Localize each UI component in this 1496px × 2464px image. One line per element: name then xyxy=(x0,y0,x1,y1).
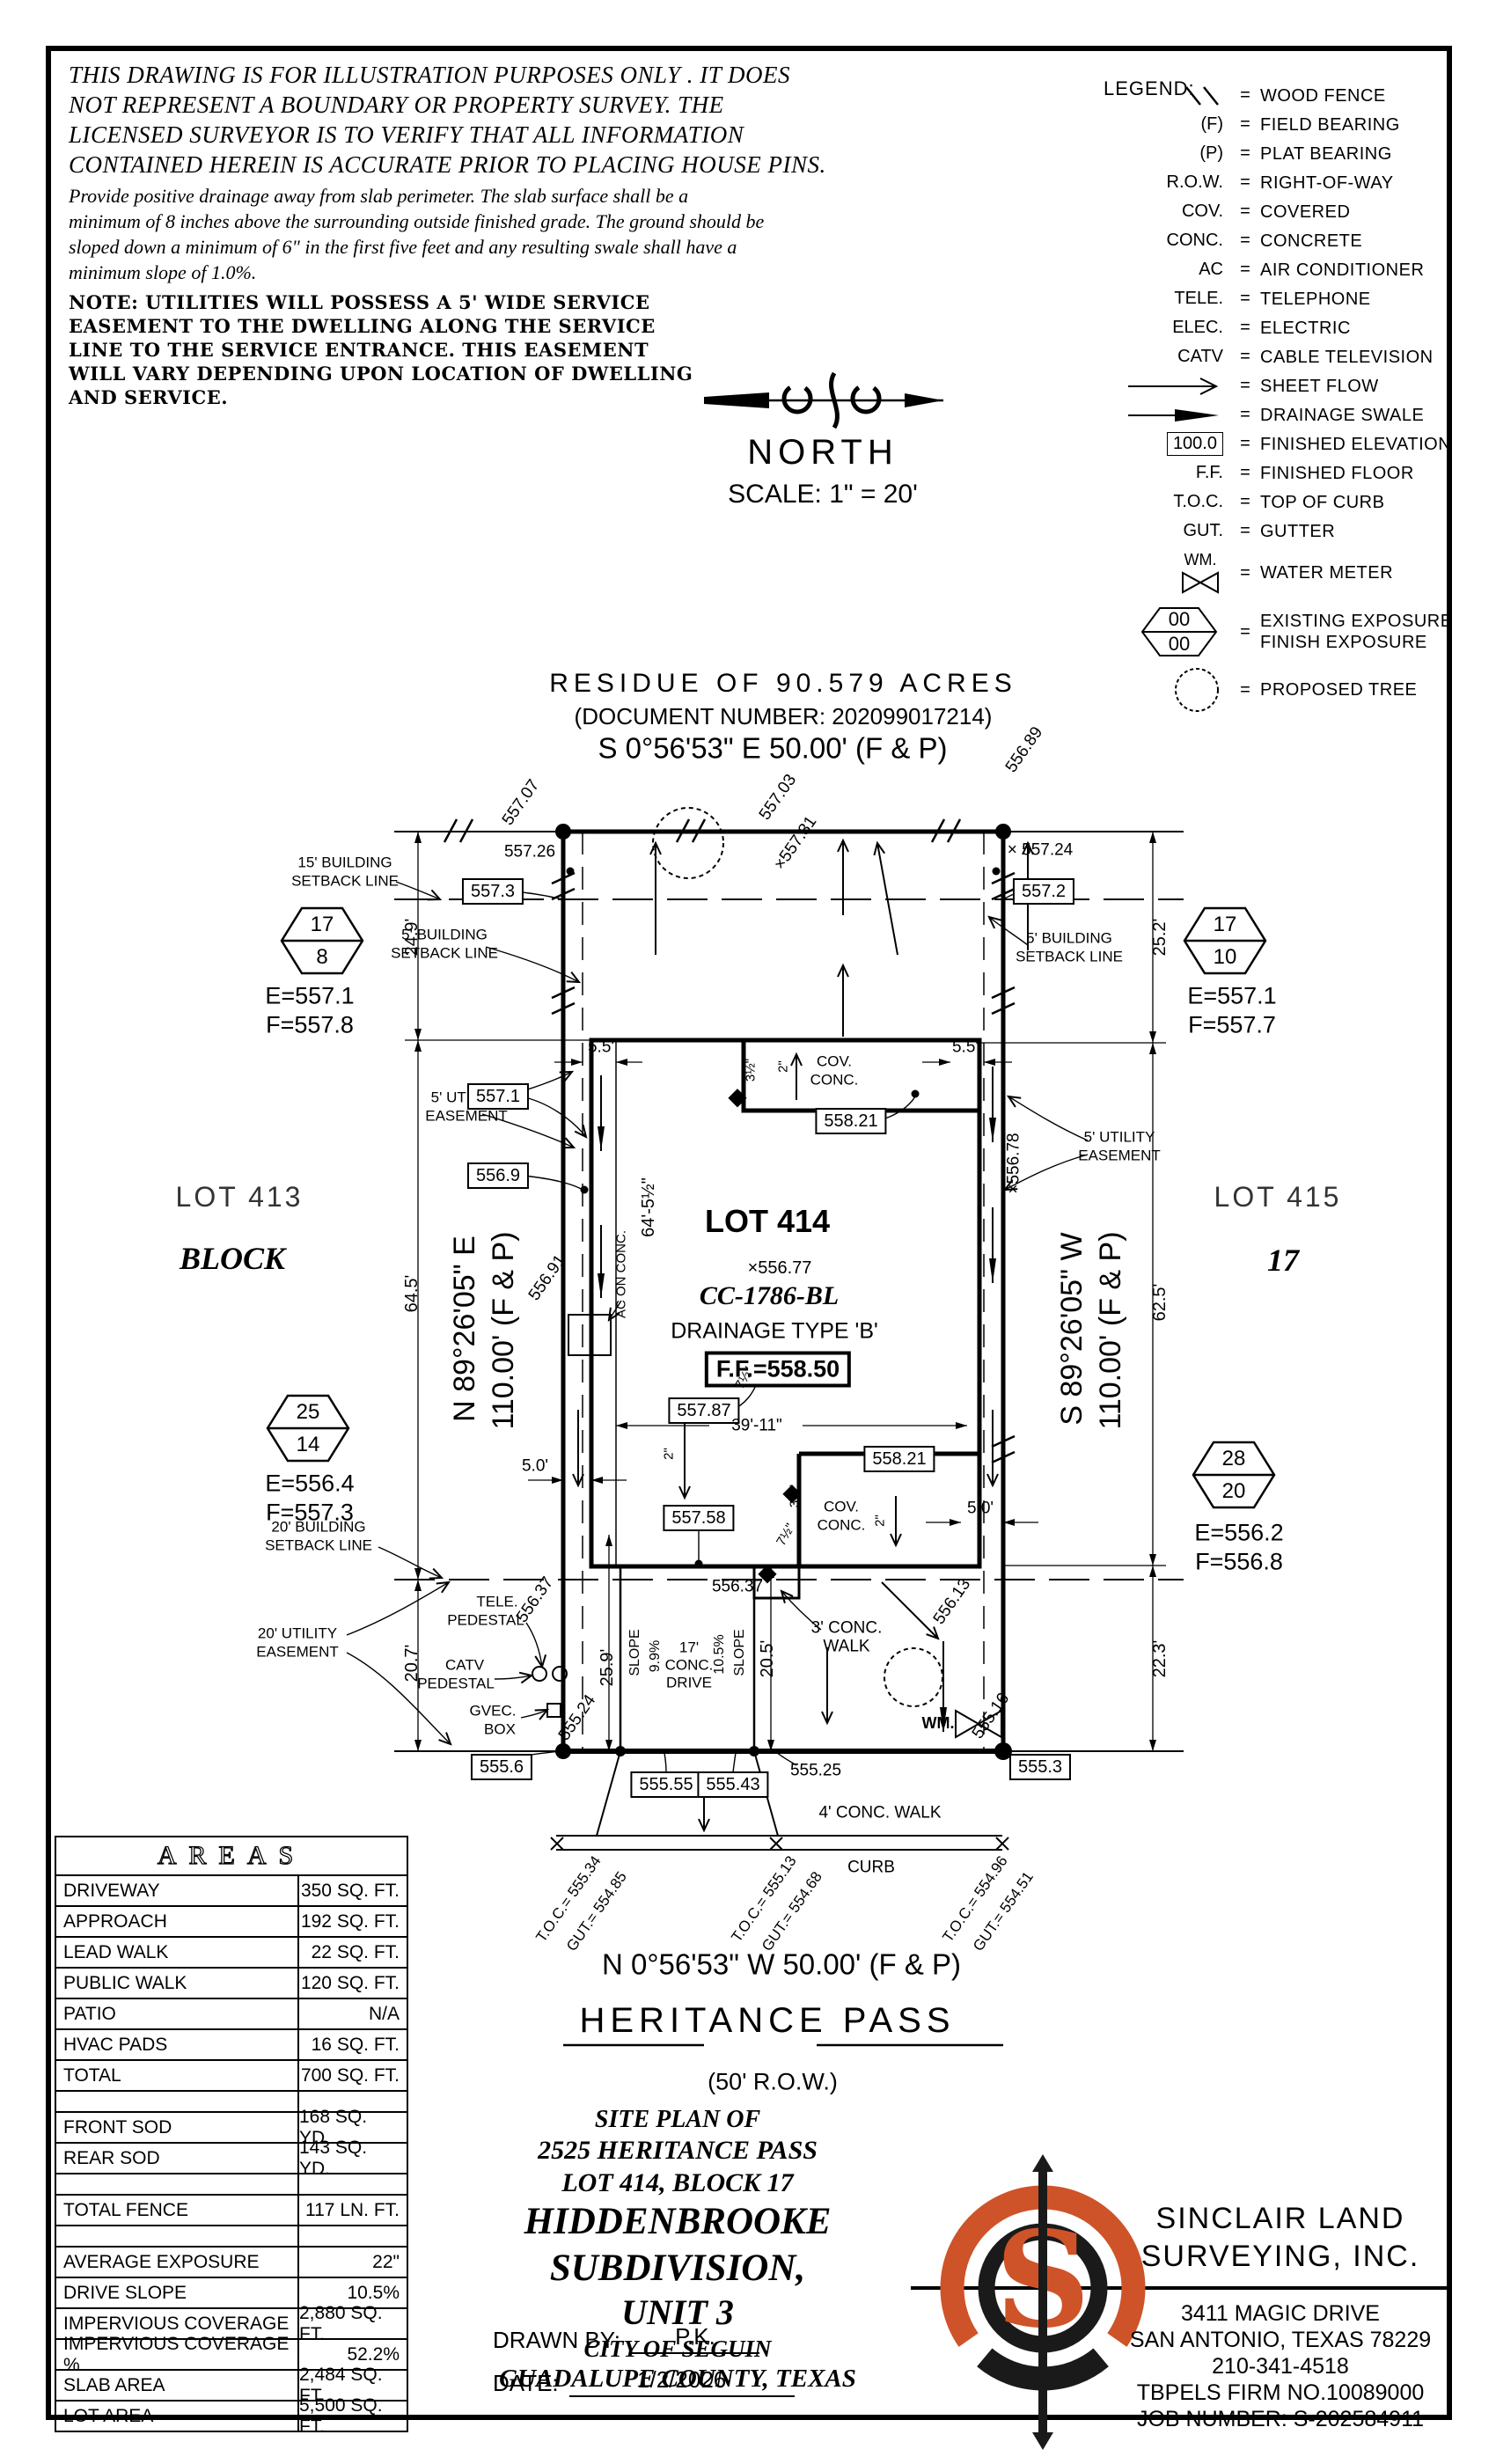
areas-table-row: TOTAL FENCE 117 LN. FT. xyxy=(55,2196,408,2226)
area-value: 700 SQ. FT. xyxy=(299,2061,407,2090)
plot-annotation: 25.9' xyxy=(598,1649,616,1687)
plot-annotation: 110.00' (F & P) xyxy=(488,1231,518,1429)
area-label: PATIO xyxy=(56,1999,299,2028)
area-label: APPROACH xyxy=(56,1907,299,1936)
legend: LEGEND: =WOOD FENCE (F)=FIELD BEARING (P… xyxy=(1091,69,1478,716)
legend-row: 100.0=FINISHED ELEVATION xyxy=(1091,429,1478,458)
note-line: minimum of 8 inches above the surroundin… xyxy=(69,209,949,234)
drainage-note: Provide positive drainage away from slab… xyxy=(69,183,949,285)
legend-row: WM. =WATER METER xyxy=(1091,546,1478,600)
plot-annotation: PEDESTAL xyxy=(447,1613,524,1628)
plot-annotation: EASEMENT xyxy=(1078,1148,1161,1163)
plot-annotation: 2" xyxy=(874,1514,887,1527)
plot-annotation: 20' BUILDING xyxy=(271,1520,365,1535)
legend-row: (F)=FIELD BEARING xyxy=(1091,110,1478,139)
areas-table-row xyxy=(55,2174,408,2196)
area-value xyxy=(299,2174,407,2194)
area-value: 5,500 SQ. FT. xyxy=(299,2402,407,2431)
proposed-tree-icon xyxy=(653,808,723,878)
areas-table: AREAS DRIVEWAY 350 SQ. FT. APPROACH 192 … xyxy=(55,1836,408,2432)
date-value: 1/2/2026 xyxy=(569,2366,795,2397)
area-label: AVERAGE EXPOSURE xyxy=(56,2248,299,2277)
title-line: HIDDENBROOKE SUBDIVISION, xyxy=(414,2199,942,2292)
plot-annotation: 64'-5½" xyxy=(640,1177,657,1237)
area-label: DRIVE SLOPE xyxy=(56,2278,299,2307)
plot-annotation: ×556.78 xyxy=(1006,1133,1023,1193)
note-line: LINE TO THE SERVICE ENTRANCE. THIS EASEM… xyxy=(69,338,949,362)
plot-annotation: 17 xyxy=(1267,1244,1299,1276)
note-line: Provide positive drainage away from slab… xyxy=(69,183,949,209)
plot-annotation: F=557.8 xyxy=(266,1014,354,1038)
plot-annotation: CURB xyxy=(847,1859,895,1876)
plot-annotation: BLOCK xyxy=(180,1243,285,1274)
plot-annotation: 64.5' xyxy=(403,1275,421,1313)
proposed-tree-icon xyxy=(1170,665,1223,715)
legend-row: F.F.=FINISHED FLOOR xyxy=(1091,458,1478,488)
plot-annotation: 557.26 xyxy=(504,844,555,861)
legend-row: =DRAINAGE SWALE xyxy=(1091,400,1478,429)
areas-table-row: LOT AREA 5,500 SQ. FT. xyxy=(55,2402,408,2432)
area-value: 117 LN. FT. xyxy=(299,2196,407,2225)
areas-table-row: PUBLIC WALK 120 SQ. FT. xyxy=(55,1969,408,1999)
area-value: 2,880 SQ. FT. xyxy=(299,2309,407,2338)
plot-annotation: 555.3 xyxy=(1009,1754,1071,1780)
surveyor-address-line: TBPELS FIRM NO.10089000 xyxy=(1104,2380,1456,2406)
plot-annotation: 22.3' xyxy=(1151,1640,1169,1678)
plot-annotation: 2" xyxy=(663,1448,676,1460)
plot-annotation: S 0°56'53" E 50.00' (F & P) xyxy=(598,734,947,763)
note-line: NOTE: UTILITIES WILL POSSESS A 5' WIDE S… xyxy=(69,290,949,314)
legend-row: =PROPOSED TREE xyxy=(1091,664,1478,716)
plot-annotation: 17' xyxy=(679,1640,699,1655)
plot-annotation: CONC. xyxy=(818,1518,866,1533)
surveyor-address-line: SAN ANTONIO, TEXAS 78229 xyxy=(1104,2327,1456,2353)
proposed-tree-icon xyxy=(884,1648,942,1706)
legend-row: R.O.W.=RIGHT-OF-WAY xyxy=(1091,168,1478,197)
utilities-note: NOTE: UTILITIES WILL POSSESS A 5' WIDE S… xyxy=(69,290,949,409)
areas-table-row: REAR SOD 143 SQ. YD. xyxy=(55,2144,408,2174)
plot-annotation: 110.00' (F & P) xyxy=(1096,1231,1126,1429)
plot-annotation: 556.9 xyxy=(467,1162,529,1189)
area-value: 143 SQ. YD. xyxy=(299,2144,407,2173)
plot-annotation: 557.1 xyxy=(467,1083,529,1110)
plot-annotation: SLOPE xyxy=(733,1629,747,1676)
area-label: HVAC PADS xyxy=(56,2030,299,2059)
legend-row: =SHEET FLOW xyxy=(1091,371,1478,400)
legend-row: CATV=CABLE TELEVISION xyxy=(1091,342,1478,371)
plot-annotation: 5' BUILDING xyxy=(1026,931,1112,946)
plot-annotation: (50' R.O.W.) xyxy=(708,2071,838,2094)
plot-annotation: WALK xyxy=(823,1639,869,1655)
legend-row: 00 00 = EXISTING EXPOSUREFINISH EXPOSURE xyxy=(1091,600,1478,664)
plot-annotation: CONC. xyxy=(810,1073,859,1088)
plot-annotation: 3½" xyxy=(744,1059,758,1082)
plot-annotation: 20.5' xyxy=(759,1640,776,1678)
areas-table-row: HVAC PADS 16 SQ. FT. xyxy=(55,2030,408,2061)
plot-annotation: SETBACK LINE xyxy=(291,874,399,889)
plot-annotation: GVEC. xyxy=(470,1704,517,1719)
plot-annotation: LOT 414 xyxy=(705,1206,830,1237)
plot-annotation: (DOCUMENT NUMBER: 202099017214) xyxy=(575,705,993,728)
plot-annotation: SETBACK LINE xyxy=(1016,950,1123,964)
plot-annotation: DRAINAGE TYPE 'B' xyxy=(671,1321,878,1343)
areas-table-row: DRIVEWAY 350 SQ. FT. xyxy=(55,1876,408,1907)
note-line: sloped down a minimum of 6" in the first… xyxy=(69,234,949,260)
plot-annotation: 9.9% xyxy=(649,1640,663,1672)
area-label: DRIVEWAY xyxy=(56,1876,299,1905)
areas-table-row: PATIO N/A xyxy=(55,1999,408,2030)
area-value: 16 SQ. FT. xyxy=(299,2030,407,2059)
plot-annotation: 5.5' xyxy=(588,1039,614,1056)
plot-annotation: 62.5' xyxy=(1151,1284,1169,1322)
plot-annotation: E=557.1 xyxy=(1187,985,1276,1008)
plot-annotation: 3½" xyxy=(788,1485,802,1507)
legend-row: AC=AIR CONDITIONER xyxy=(1091,255,1478,284)
plot-annotation: 555.25 xyxy=(790,1763,841,1779)
plot-annotation: 555.43 xyxy=(697,1771,768,1798)
plot-annotation: PEDESTAL xyxy=(417,1676,495,1691)
areas-table-row: AVERAGE EXPOSURE 22" xyxy=(55,2248,408,2278)
plot-annotation: 5.0' xyxy=(967,1500,994,1517)
plot-annotation: 557.3 xyxy=(462,878,524,905)
drawn-by-value: P.K. xyxy=(631,2323,759,2354)
legend-row: GUT.=GUTTER xyxy=(1091,517,1478,546)
area-label: SLAB AREA xyxy=(56,2371,299,2400)
surveyor-address: 3411 MAGIC DRIVESAN ANTONIO, TEXAS 78229… xyxy=(1104,2300,1456,2432)
plot-annotation: EASEMENT xyxy=(425,1109,508,1124)
plot-annotation: 14 xyxy=(297,1434,320,1456)
plot-annotation: 5' BUILDING xyxy=(401,928,488,942)
plot-annotation: F.F.=558.50 xyxy=(705,1352,851,1388)
plot-annotation: 25 xyxy=(297,1402,320,1423)
note-line: WILL VARY DEPENDING UPON LOCATION OF DWE… xyxy=(69,362,949,385)
sheet-flow-icon xyxy=(1126,377,1223,396)
note-line: AND SERVICE. xyxy=(69,385,949,409)
legend-row: CONC.=CONCRETE xyxy=(1091,226,1478,255)
legend-row: COV.=COVERED xyxy=(1091,197,1478,226)
exposure-hexagon-icon: 00 00 xyxy=(1135,603,1223,661)
plot-annotation: TELE. xyxy=(476,1595,517,1610)
area-value xyxy=(299,2226,407,2246)
legend-row: TELE.=TELEPHONE xyxy=(1091,284,1478,313)
plot-annotation: CC-1786-BL xyxy=(700,1283,839,1309)
area-value: 192 SQ. FT. xyxy=(299,1907,407,1936)
area-value: 350 SQ. FT. xyxy=(299,1876,407,1905)
plot-annotation: × 557.24 xyxy=(1008,842,1074,859)
plot-annotation: 8 xyxy=(316,947,327,968)
plot-annotation: LOT 413 xyxy=(176,1183,304,1211)
area-label: FRONT SOD xyxy=(56,2113,299,2142)
svg-text:00: 00 xyxy=(1169,633,1190,655)
plot-annotation: 28 xyxy=(1222,1448,1246,1470)
plot-annotation: S 89°26'05" W xyxy=(1057,1232,1087,1425)
plot-annotation: SETBACK LINE xyxy=(391,946,498,961)
svg-text:00: 00 xyxy=(1169,608,1190,630)
legend-row: ELEC.=ELECTRIC xyxy=(1091,313,1478,342)
plot-annotation: 17 xyxy=(1214,914,1237,935)
areas-table-row: APPROACH 192 SQ. FT. xyxy=(55,1907,408,1938)
plot-annotation: 557.87 xyxy=(668,1397,739,1424)
plot-annotation: 39'-11" xyxy=(731,1418,782,1434)
plot-annotation: 555.6 xyxy=(471,1754,532,1780)
plot-annotation: 557.2 xyxy=(1013,878,1074,905)
plot-annotation: E=556.2 xyxy=(1194,1522,1283,1545)
disclaimer-notes: THIS DRAWING IS FOR ILLUSTRATION PURPOSE… xyxy=(69,60,949,409)
plot-annotation: AC ON CONC. xyxy=(615,1230,628,1318)
surveyor-address-line: JOB NUMBER: S-202584911 xyxy=(1104,2406,1456,2432)
plot-annotation: RESIDUE OF 90.579 ACRES xyxy=(549,671,1017,697)
plot-annotation: DRIVE xyxy=(666,1676,712,1690)
title-line: LOT 414, BLOCK 17 xyxy=(414,2167,942,2200)
date-label: DATE: xyxy=(493,2370,559,2397)
site-plan-sheet: S THIS DRAWING IS FOR ILLUSTRATION PURPO… xyxy=(0,0,1496,2464)
plot-annotation: COV. xyxy=(817,1054,852,1069)
plot-annotation: 555.55 xyxy=(630,1771,701,1798)
note-line: NOT REPRESENT A BOUNDARY OR PROPERTY SUR… xyxy=(69,90,949,120)
areas-table-title: AREAS xyxy=(55,1836,408,1876)
plot-annotation: EASEMENT xyxy=(256,1645,339,1660)
surveyor-address-line: 210-341-4518 xyxy=(1104,2353,1456,2380)
areas-table-row: LEAD WALK 22 SQ. FT. xyxy=(55,1938,408,1969)
plot-annotation: E=556.4 xyxy=(265,1472,354,1496)
plot-annotation: WM. xyxy=(922,1715,955,1731)
surveyor-address-line: 3411 MAGIC DRIVE xyxy=(1104,2300,1456,2327)
area-label: TOTAL xyxy=(56,2061,299,2090)
areas-table-row xyxy=(55,2226,408,2248)
surveyor-name-line: SINCLAIR LAND xyxy=(1104,2200,1456,2238)
plot-annotation: 4' CONC. WALK xyxy=(818,1805,941,1822)
area-value: 120 SQ. FT. xyxy=(299,1969,407,1998)
plot-annotation: N 89°26'05" E xyxy=(450,1236,480,1422)
plot-annotation: 2" xyxy=(777,1060,790,1073)
note-line: LICENSED SURVEYOR IS TO VERIFY THAT ALL … xyxy=(69,120,949,150)
plot-annotation: 558.21 xyxy=(815,1108,886,1134)
plot-annotation: SETBACK LINE xyxy=(265,1538,372,1553)
plot-annotation: NORTH xyxy=(747,435,898,470)
area-value: N/A xyxy=(299,1999,407,2028)
plot-annotation: 20 xyxy=(1222,1481,1246,1502)
area-label: PUBLIC WALK xyxy=(56,1969,299,1998)
surveyor-name-line: SURVEYING, INC. xyxy=(1104,2238,1456,2276)
area-value: 22" xyxy=(299,2248,407,2277)
plot-annotation: ×556.77 xyxy=(748,1259,812,1277)
plot-annotation: E=557.1 xyxy=(265,985,354,1008)
area-label: LOT AREA xyxy=(56,2402,299,2431)
plot-annotation: 5.5' xyxy=(952,1039,979,1056)
area-label: REAR SOD xyxy=(56,2144,299,2173)
note-line: minimum slope of 1.0%. xyxy=(69,260,949,285)
plot-annotation: 20' UTILITY xyxy=(258,1626,337,1641)
drainage-swale-icon xyxy=(1126,406,1223,425)
plot-annotation: 5.0' xyxy=(522,1458,548,1475)
plot-annotation: F=557.7 xyxy=(1188,1014,1276,1038)
plot-annotation: 15' BUILDING xyxy=(297,855,392,870)
area-value: 22 SQ. FT. xyxy=(299,1938,407,1967)
plot-annotation: 556.37 xyxy=(712,1579,763,1595)
plot-annotation: CATV xyxy=(445,1658,484,1673)
area-label: IMPERVIOUS COVERAGE % xyxy=(56,2340,299,2369)
area-label: LEAD WALK xyxy=(56,1938,299,1967)
title-line: SITE PLAN OF xyxy=(414,2105,942,2135)
legend-row: T.O.C.=TOP OF CURB xyxy=(1091,488,1478,517)
water-meter-icon xyxy=(1177,569,1223,596)
plot-annotation: 10 xyxy=(1214,947,1237,968)
plot-annotation: F=556.8 xyxy=(1195,1551,1283,1574)
plot-annotation: COV. xyxy=(824,1500,859,1514)
plot-annotation: 17 xyxy=(311,914,334,935)
title-line: 2525 HERITANCE PASS xyxy=(414,2135,942,2167)
plot-annotation: SLOPE xyxy=(628,1629,642,1676)
plot-annotation: BOX xyxy=(484,1722,516,1737)
plot-annotation: 3' CONC. xyxy=(811,1620,883,1637)
plot-annotation: SCALE: 1" = 20' xyxy=(728,481,918,508)
plot-annotation: LOT 415 xyxy=(1214,1183,1342,1211)
legend-row: (P)=PLAT BEARING xyxy=(1091,139,1478,168)
plot-annotation: 10.5% xyxy=(713,1634,727,1674)
areas-table-row: TOTAL 700 SQ. FT. xyxy=(55,2061,408,2092)
area-label: TOTAL FENCE xyxy=(56,2196,299,2225)
drawn-by-label: DRAWN BY: xyxy=(493,2327,620,2354)
legend-title: LEGEND: xyxy=(1104,77,1195,100)
area-label xyxy=(56,2226,299,2246)
plot-annotation: 557.58 xyxy=(663,1505,734,1531)
note-line: EASEMENT TO THE DWELLING ALONG THE SERVI… xyxy=(69,314,949,338)
plot-annotation: 5' UTILITY xyxy=(1084,1130,1155,1145)
illustration-note: THIS DRAWING IS FOR ILLUSTRATION PURPOSE… xyxy=(69,60,949,180)
signoff-block: DRAWN BY: P.K. DATE: 1/2/2026 xyxy=(493,2323,915,2409)
plot-annotation: HERITANCE PASS xyxy=(579,2003,955,2038)
plot-annotation: 558.21 xyxy=(863,1446,935,1472)
plot-annotation: N 0°56'53" W 50.00' (F & P) xyxy=(602,1950,961,1979)
area-label xyxy=(56,2174,299,2194)
area-label xyxy=(56,2092,299,2111)
surveyor-name: SINCLAIR LAND SURVEYING, INC. xyxy=(1104,2200,1456,2276)
note-line: CONTAINED HEREIN IS ACCURATE PRIOR TO PL… xyxy=(69,150,949,180)
note-line: THIS DRAWING IS FOR ILLUSTRATION PURPOSE… xyxy=(69,60,949,90)
plot-annotation: CONC. xyxy=(665,1658,714,1673)
plot-annotation: 25.2' xyxy=(1151,919,1169,957)
